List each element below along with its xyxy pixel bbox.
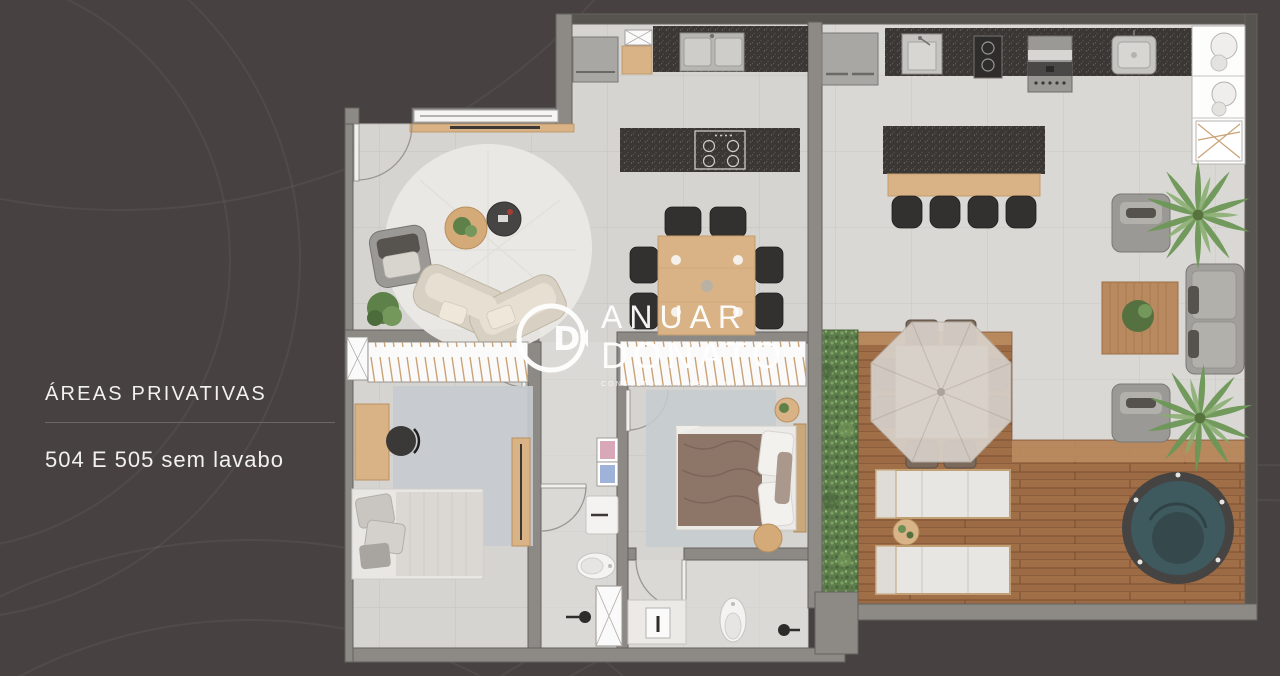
grill-icon xyxy=(1028,36,1072,92)
parasol-icon xyxy=(871,322,1011,462)
side-table xyxy=(893,519,919,545)
sink-icon xyxy=(1112,30,1156,74)
nightstand xyxy=(754,524,782,552)
toilet-icon xyxy=(577,553,615,579)
sun-lounger xyxy=(876,470,1010,518)
shower-head-icon xyxy=(579,611,591,623)
faucet-icon xyxy=(710,34,714,38)
fridge-icon xyxy=(822,33,878,85)
left-text-panel: ÁREAS PRIVATIVAS 504 E 505 sem lavabo xyxy=(45,383,345,473)
floor-plan xyxy=(0,0,1280,676)
laundry-column xyxy=(1192,26,1245,164)
bedroom-1 xyxy=(347,337,533,579)
desk xyxy=(355,404,389,480)
toilet-icon xyxy=(720,598,746,642)
bedroom-2 xyxy=(620,341,806,552)
fridge-icon xyxy=(573,37,618,82)
armchair xyxy=(1112,384,1170,442)
hot-tub-icon xyxy=(1122,472,1234,584)
washer-icon xyxy=(1211,33,1237,59)
sofa xyxy=(1186,264,1244,374)
shower-head-icon xyxy=(778,624,790,636)
plan-variant-label: 504 E 505 sem lavabo xyxy=(45,447,345,473)
living-window xyxy=(410,110,574,132)
sink-icon xyxy=(902,34,942,74)
desk-chair xyxy=(386,426,416,456)
single-bed xyxy=(352,489,483,579)
screenshot-root: ÁREAS PRIVATIVAS 504 E 505 sem lavabo D … xyxy=(0,0,1280,676)
panel-divider xyxy=(45,422,335,423)
double-bed xyxy=(676,424,806,532)
wall-art xyxy=(600,441,615,459)
coffee-table xyxy=(1102,282,1178,354)
cooktop-icon xyxy=(974,36,1002,78)
sun-lounger xyxy=(876,546,1010,594)
page-title: ÁREAS PRIVATIVAS xyxy=(45,383,345,406)
